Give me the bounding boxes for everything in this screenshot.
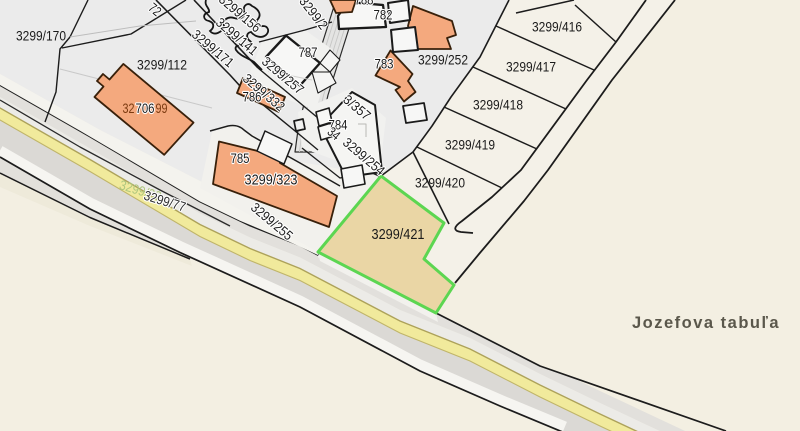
svg-text:3299/416: 3299/416 <box>532 20 582 35</box>
svg-text:3299/112: 3299/112 <box>137 58 187 73</box>
svg-text:3299/170: 3299/170 <box>16 29 66 44</box>
svg-text:785: 785 <box>231 151 250 166</box>
svg-text:3299/418: 3299/418 <box>473 98 523 113</box>
svg-text:99: 99 <box>156 101 168 116</box>
svg-text:3299/252: 3299/252 <box>418 53 468 68</box>
svg-text:706: 706 <box>136 101 155 116</box>
svg-text:787: 787 <box>299 45 318 60</box>
svg-text:783: 783 <box>375 57 394 72</box>
svg-text:786: 786 <box>243 90 262 105</box>
svg-text:32: 32 <box>123 101 135 116</box>
svg-text:3299/419: 3299/419 <box>445 138 495 153</box>
svg-text:3299/421: 3299/421 <box>372 227 425 243</box>
svg-text:3299/420: 3299/420 <box>415 176 465 191</box>
svg-text:3299/417: 3299/417 <box>506 60 556 75</box>
svg-text:782: 782 <box>374 8 393 23</box>
svg-text:Jozefova tabuľa: Jozefova tabuľa <box>632 314 780 332</box>
svg-text:788: 788 <box>355 0 374 8</box>
svg-text:3299/323: 3299/323 <box>245 173 298 189</box>
